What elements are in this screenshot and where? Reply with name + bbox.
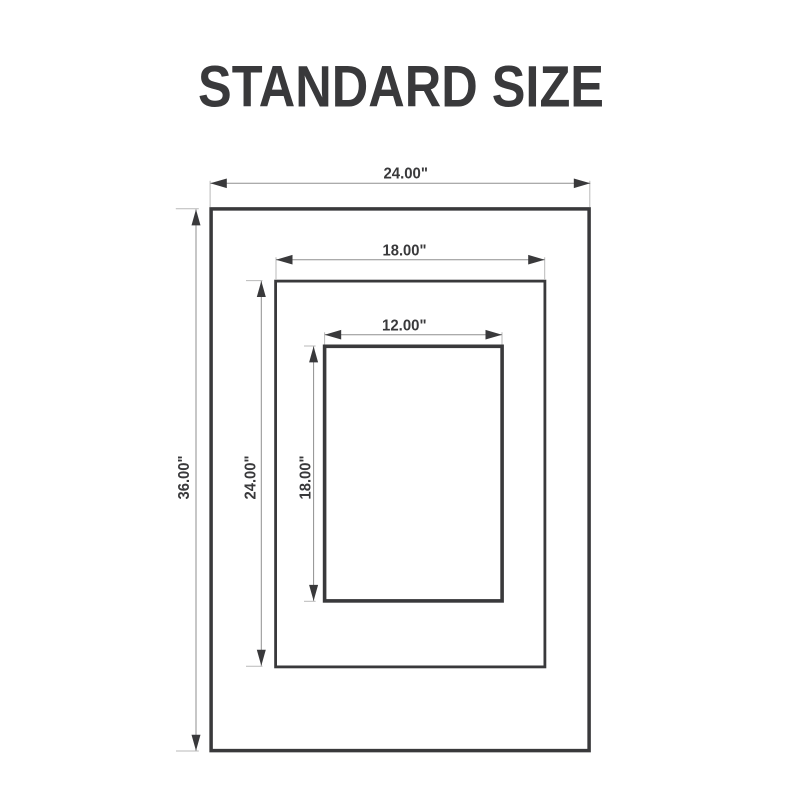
svg-text:12.00": 12.00" [382,318,427,335]
svg-text:18.00": 18.00" [297,456,314,500]
svg-text:STANDARD SIZE: STANDARD SIZE [198,55,604,120]
svg-text:18.00": 18.00" [383,243,427,260]
svg-text:24.00": 24.00" [383,165,428,182]
svg-text:24.00": 24.00" [243,456,260,500]
svg-text:36.00": 36.00" [176,456,193,500]
